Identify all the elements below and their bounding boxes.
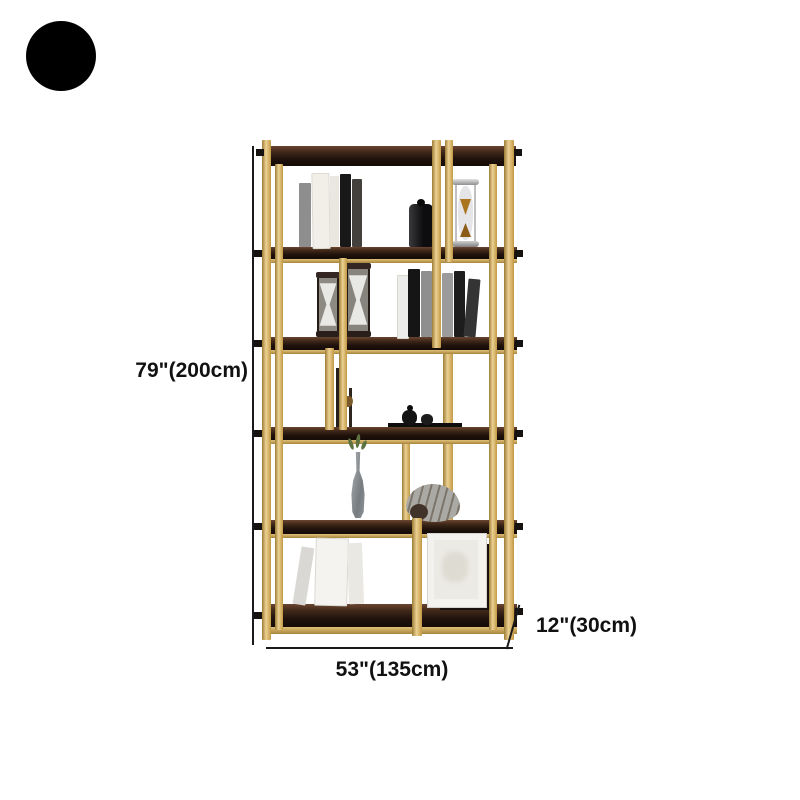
hourglass-rod xyxy=(368,269,370,331)
frame-post-gold xyxy=(489,164,497,630)
picture-frame xyxy=(427,533,487,608)
shelf xyxy=(262,337,517,350)
metal-hourglass xyxy=(452,179,479,247)
dimension-width-label: 53"(135cm) xyxy=(299,658,485,682)
shelf-end-cap xyxy=(515,430,523,437)
shelf-gold-rail xyxy=(262,259,517,263)
shelf-end-cap xyxy=(515,523,523,530)
hourglass-rod xyxy=(317,278,319,331)
book xyxy=(421,271,432,337)
book xyxy=(314,538,349,607)
book xyxy=(340,174,351,247)
hourglass-rod xyxy=(455,185,457,241)
storage-jar xyxy=(409,204,433,247)
nautilus-shell xyxy=(406,484,460,522)
hourglass-rod xyxy=(474,185,476,241)
shelf-gold-rail xyxy=(262,440,517,444)
hourglass-cap xyxy=(345,331,371,337)
shelf-end-cap xyxy=(254,340,262,347)
book xyxy=(311,173,330,249)
shelf-end-cap xyxy=(254,430,262,437)
ink-pot-knob xyxy=(407,405,413,411)
hourglass-cap xyxy=(316,331,340,337)
shelf-end-cap xyxy=(254,250,262,257)
picture-smudge xyxy=(442,552,468,582)
book xyxy=(463,279,480,338)
shelf-end-cap xyxy=(514,149,522,156)
base-gold-rail xyxy=(262,627,517,634)
shelf-end-cap xyxy=(515,340,523,347)
jar-lid-knob xyxy=(417,199,425,206)
book xyxy=(352,179,362,247)
frame-post-gold xyxy=(262,140,271,640)
glass-vase xyxy=(347,452,369,520)
hourglass-cap xyxy=(452,241,479,247)
shelf-end-cap xyxy=(256,149,264,156)
frame-post-gold xyxy=(445,140,453,262)
dark-hourglass xyxy=(316,272,340,337)
ink-pot xyxy=(421,414,433,425)
frame-post-gold xyxy=(339,258,347,430)
book xyxy=(408,269,420,337)
shelf-top xyxy=(264,146,516,166)
product-image: 79"(200cm) 53"(135cm) 12"(30cm) xyxy=(0,0,800,800)
dimension-depth-label: 12"(30cm) xyxy=(536,614,637,638)
book xyxy=(299,183,311,247)
dimension-width-line xyxy=(266,647,513,649)
book xyxy=(347,543,364,604)
frame-post-gold xyxy=(432,140,441,348)
shelf-end-cap xyxy=(254,523,262,530)
book xyxy=(293,546,315,605)
shelf-end-cap xyxy=(254,612,262,619)
book xyxy=(442,273,453,337)
shelf xyxy=(262,247,517,259)
dark-hourglass xyxy=(345,263,371,337)
frame-post-gold xyxy=(325,348,334,430)
dimension-height-label: 79"(200cm) xyxy=(118,359,248,383)
ink-pot xyxy=(402,410,417,425)
shelf xyxy=(262,427,517,440)
frame-post-gold xyxy=(412,518,422,636)
shelf xyxy=(262,520,517,534)
shelf-end-cap xyxy=(515,250,523,257)
dimension-height-line xyxy=(252,146,254,645)
twig-stem xyxy=(349,388,352,427)
book xyxy=(330,176,339,247)
shelf-gold-rail xyxy=(262,350,517,354)
frame-post-gold xyxy=(504,140,514,640)
frame-post-gold xyxy=(275,164,283,630)
